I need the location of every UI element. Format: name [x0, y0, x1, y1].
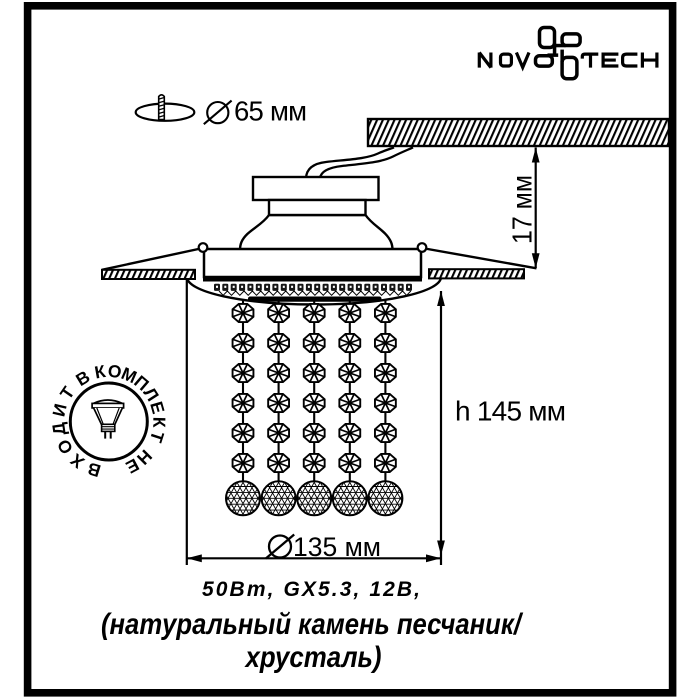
- svg-text:хрусmаль): хрусmаль): [244, 641, 382, 674]
- svg-text:(наmуральный камень песчаник/: (наmуральный камень песчаник/: [101, 608, 523, 641]
- svg-text:17 мм: 17 мм: [507, 175, 538, 244]
- svg-text:135 мм: 135 мм: [293, 532, 381, 562]
- svg-text:65 мм: 65 мм: [234, 96, 307, 127]
- svg-text:К: К: [149, 417, 169, 428]
- svg-text:h 145 мм: h 145 мм: [455, 396, 566, 427]
- svg-text:50Вm, GX5.3, 12В,: 50Вm, GX5.3, 12В,: [202, 578, 420, 601]
